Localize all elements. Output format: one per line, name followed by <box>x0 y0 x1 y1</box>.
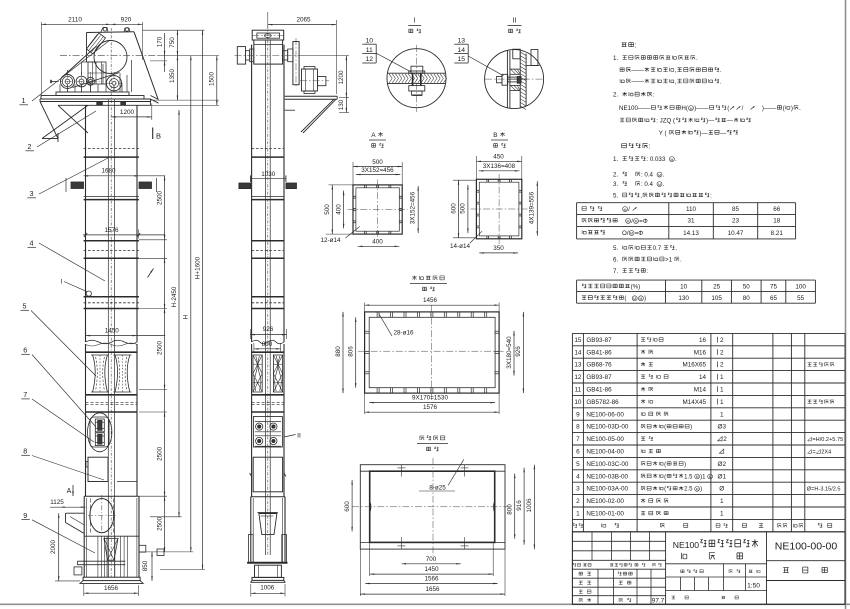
svg-text:II: II <box>297 433 301 440</box>
svg-text:.: . <box>696 55 698 62</box>
svg-text:1200: 1200 <box>338 70 345 85</box>
svg-text:13: 13 <box>574 362 582 369</box>
svg-text:0.7: 0.7 <box>653 245 662 252</box>
svg-text:170: 170 <box>156 36 163 47</box>
svg-text:850: 850 <box>142 560 149 571</box>
svg-text::: : <box>646 268 648 275</box>
svg-text::: : <box>710 193 712 200</box>
svg-text:14.13: 14.13 <box>683 230 699 237</box>
svg-text:8: 8 <box>23 447 27 456</box>
svg-text:=: = <box>812 450 815 456</box>
svg-text:2.: 2. <box>613 92 618 99</box>
svg-text:)—: )— <box>699 130 708 137</box>
svg-text:7: 7 <box>576 436 580 443</box>
svg-text:.: . <box>720 67 722 74</box>
svg-text:1200: 1200 <box>120 109 135 116</box>
svg-text:1680: 1680 <box>101 167 116 174</box>
svg-text:(: ( <box>664 474 666 480</box>
svg-text:2X4: 2X4 <box>821 450 831 456</box>
svg-text:8: 8 <box>576 424 580 431</box>
svg-text:,: , <box>675 67 677 74</box>
svg-text:): ) <box>684 462 686 468</box>
svg-text:.: . <box>680 257 682 264</box>
svg-text:350: 350 <box>493 245 504 252</box>
svg-text:16: 16 <box>699 337 707 344</box>
svg-text:: 0.4: : 0.4 <box>641 172 654 179</box>
svg-text:NE100-01-00: NE100-01-00 <box>586 511 624 518</box>
svg-text:B: B <box>493 132 497 139</box>
svg-text:.: . <box>720 79 722 86</box>
svg-text:NE100-03B-00: NE100-03B-00 <box>586 473 628 480</box>
svg-text:450: 450 <box>493 154 504 161</box>
svg-text:——: —— <box>631 79 644 86</box>
svg-text:66: 66 <box>773 206 781 213</box>
svg-text:M: M <box>624 208 627 212</box>
svg-text:3X180=540: 3X180=540 <box>506 336 513 369</box>
svg-text:M: M <box>670 158 673 162</box>
svg-text:—: — <box>727 118 734 125</box>
svg-text:M16X65: M16X65 <box>683 362 707 369</box>
svg-text:5.: 5. <box>613 245 618 252</box>
svg-text:1350: 1350 <box>169 69 176 84</box>
svg-text:65: 65 <box>770 295 778 302</box>
svg-text:NE100-05-00: NE100-05-00 <box>586 436 624 443</box>
svg-text:1656: 1656 <box>104 585 119 592</box>
svg-text:M: M <box>696 488 699 492</box>
svg-text:1:50: 1:50 <box>747 582 760 589</box>
svg-text:): ) <box>690 425 692 431</box>
svg-text:1.5: 1.5 <box>684 474 693 480</box>
svg-text:2: 2 <box>28 142 32 151</box>
svg-text:800: 800 <box>507 504 514 515</box>
svg-text:Ø: Ø <box>719 486 724 493</box>
svg-text:6: 6 <box>576 449 580 456</box>
svg-text:130: 130 <box>338 99 345 110</box>
svg-text:: JZQ (: : JZQ ( <box>656 118 676 125</box>
svg-text:: 0.4: : 0.4 <box>641 181 654 188</box>
svg-text:5: 5 <box>576 461 580 468</box>
svg-text:10.47: 10.47 <box>728 230 744 237</box>
svg-text:10: 10 <box>366 37 374 44</box>
svg-text:6.: 6. <box>613 257 618 264</box>
svg-text:.: . <box>663 172 665 179</box>
svg-text:)——: )—— <box>762 105 777 112</box>
svg-text:NE100-00-00: NE100-00-00 <box>775 541 838 553</box>
svg-text:): ) <box>700 487 702 493</box>
svg-text:3X152=456: 3X152=456 <box>361 167 394 174</box>
svg-text::: : <box>653 92 655 99</box>
svg-text:(%): (%) <box>631 284 641 291</box>
svg-text:/: / <box>631 218 633 225</box>
svg-text:,: , <box>675 79 677 86</box>
svg-text:=Φ: =Φ <box>639 218 648 225</box>
svg-text:2: 2 <box>720 349 724 356</box>
svg-text:1450: 1450 <box>105 327 120 334</box>
svg-text:23: 23 <box>732 218 740 225</box>
svg-text::: : <box>635 43 637 50</box>
svg-text:75: 75 <box>770 284 778 291</box>
svg-text:3X136=408: 3X136=408 <box>483 163 516 170</box>
svg-text:GB5782-86: GB5782-86 <box>586 399 619 406</box>
svg-text:110: 110 <box>686 206 697 213</box>
svg-text:85: 85 <box>732 206 740 213</box>
svg-text:,: , <box>640 193 642 200</box>
svg-text:I: I <box>414 18 416 25</box>
svg-text:(: ( <box>664 487 666 493</box>
svg-text:2: 2 <box>720 362 724 369</box>
svg-text:1576: 1576 <box>104 227 119 234</box>
svg-text:6: 6 <box>23 346 27 355</box>
svg-text:)1: )1 <box>700 474 706 480</box>
svg-text:H: H <box>183 314 190 319</box>
svg-text:=Φ: =Φ <box>635 230 644 237</box>
svg-text:M: M <box>630 232 633 236</box>
svg-text:2: 2 <box>576 498 580 505</box>
svg-text:1500: 1500 <box>209 72 216 87</box>
svg-text:800: 800 <box>262 341 273 348</box>
svg-text:8-ø25: 8-ø25 <box>429 485 446 492</box>
svg-text:700: 700 <box>426 556 437 563</box>
svg-text:12: 12 <box>574 374 582 381</box>
svg-text:1566: 1566 <box>424 575 439 582</box>
svg-text:M: M <box>696 475 699 479</box>
svg-text:2065: 2065 <box>296 16 311 23</box>
svg-text:1: 1 <box>22 96 26 105</box>
svg-text:2: 2 <box>720 337 724 344</box>
svg-text:Ø2: Ø2 <box>718 461 727 468</box>
svg-text:130: 130 <box>678 295 689 302</box>
svg-text:5: 5 <box>23 302 27 311</box>
svg-text:.: . <box>663 181 665 188</box>
svg-text:80: 80 <box>743 295 751 302</box>
svg-text:)——: )—— <box>694 105 709 112</box>
svg-text:/: / <box>742 105 744 112</box>
svg-text:M: M <box>690 107 693 111</box>
svg-text:1: 1 <box>576 511 580 518</box>
svg-text:>1: >1 <box>665 257 673 264</box>
svg-text:NE100-03D-00: NE100-03D-00 <box>586 424 629 431</box>
svg-text:10: 10 <box>680 284 688 291</box>
svg-text:NE100-03A-00: NE100-03A-00 <box>586 486 628 493</box>
svg-text:1125: 1125 <box>50 499 64 506</box>
svg-text:NE100-03C-00: NE100-03C-00 <box>586 461 629 468</box>
svg-text:NE100-04-00: NE100-04-00 <box>586 449 624 456</box>
svg-text:14: 14 <box>699 374 707 381</box>
svg-text:M16: M16 <box>694 349 707 356</box>
svg-text:25: 25 <box>713 284 721 291</box>
svg-text:2500: 2500 <box>157 446 164 461</box>
svg-text:B: B <box>156 131 161 140</box>
svg-text:400: 400 <box>372 238 383 245</box>
svg-text:M: M <box>658 183 661 187</box>
svg-text:A: A <box>67 488 72 495</box>
svg-text:GB41-86: GB41-86 <box>586 349 612 356</box>
svg-text:.: . <box>675 245 677 252</box>
svg-text:——: —— <box>631 67 644 74</box>
svg-text:GB93-87: GB93-87 <box>586 337 612 344</box>
svg-text:3.: 3. <box>613 181 618 188</box>
svg-text:97.7: 97.7 <box>652 597 665 604</box>
svg-text:806: 806 <box>348 346 355 357</box>
svg-text:2500: 2500 <box>157 341 164 356</box>
svg-text:GB93-87: GB93-87 <box>586 374 612 381</box>
svg-text:: 0.033: : 0.033 <box>646 156 665 163</box>
svg-text:400: 400 <box>335 204 342 215</box>
svg-text:2110: 2110 <box>68 16 82 23</box>
svg-text:M14: M14 <box>694 387 707 394</box>
svg-text:2.5: 2.5 <box>684 487 693 493</box>
svg-text:31: 31 <box>687 218 695 225</box>
svg-text:1006: 1006 <box>260 585 275 592</box>
svg-text:9: 9 <box>576 411 580 418</box>
svg-text:50: 50 <box>743 284 751 291</box>
svg-text:11: 11 <box>366 47 373 54</box>
svg-text:4: 4 <box>30 239 34 248</box>
svg-text:600: 600 <box>450 203 457 214</box>
svg-text:Y (: Y ( <box>659 130 668 137</box>
svg-text:1450: 1450 <box>424 566 439 573</box>
svg-text:NE100——: NE100—— <box>619 105 651 112</box>
svg-text:1030: 1030 <box>261 171 276 178</box>
svg-text:A: A <box>371 132 376 139</box>
svg-text:12: 12 <box>366 56 374 63</box>
svg-text:I: I <box>61 279 63 286</box>
svg-text:/: / <box>628 206 630 213</box>
svg-text:1656: 1656 <box>425 586 440 593</box>
svg-text:1: 1 <box>720 411 724 418</box>
svg-text:(: ( <box>664 425 666 431</box>
svg-text:1: 1 <box>720 374 724 381</box>
svg-text:100: 100 <box>795 284 806 291</box>
svg-text:10: 10 <box>574 399 582 406</box>
svg-text:II: II <box>513 18 517 25</box>
svg-text:500: 500 <box>460 203 467 214</box>
svg-text:1: 1 <box>720 498 724 505</box>
svg-text:1576: 1576 <box>423 404 438 411</box>
svg-text:9: 9 <box>23 511 27 520</box>
svg-text:18: 18 <box>773 218 781 225</box>
svg-text:3X152=456: 3X152=456 <box>410 191 417 224</box>
svg-text:3: 3 <box>30 189 34 198</box>
svg-text:GB41-86: GB41-86 <box>586 387 612 394</box>
svg-text:): ) <box>644 295 646 302</box>
svg-text:13: 13 <box>458 37 466 44</box>
svg-text:M14X45: M14X45 <box>683 399 707 406</box>
svg-text:M: M <box>635 220 638 224</box>
svg-text:14: 14 <box>458 47 466 54</box>
svg-text:7: 7 <box>23 390 27 399</box>
svg-text:7.: 7. <box>613 268 618 275</box>
svg-text:4X139=556: 4X139=556 <box>529 191 536 224</box>
svg-text:)—: )— <box>706 118 715 125</box>
svg-text:H(: H( <box>681 105 688 112</box>
svg-text:600: 600 <box>344 501 351 512</box>
svg-text:105: 105 <box>711 295 722 302</box>
svg-text:15: 15 <box>574 337 582 344</box>
svg-text:M: M <box>627 220 630 224</box>
svg-text:1: 1 <box>720 399 724 406</box>
svg-text:916: 916 <box>516 500 523 511</box>
svg-text:M: M <box>633 297 636 301</box>
svg-text:926: 926 <box>263 326 274 333</box>
svg-text:1006: 1006 <box>526 498 533 513</box>
svg-text:—: — <box>720 130 727 137</box>
svg-text:920: 920 <box>121 16 132 23</box>
svg-text:2500: 2500 <box>157 516 164 531</box>
svg-text:M: M <box>639 297 642 301</box>
svg-text:): ) <box>791 105 793 112</box>
svg-text:M: M <box>658 173 661 177</box>
svg-text:Ø3: Ø3 <box>718 424 727 431</box>
svg-text:2: 2 <box>723 436 727 443</box>
svg-text:GB68-76: GB68-76 <box>586 362 612 369</box>
svg-text:(: ( <box>664 462 666 468</box>
svg-text:Ø=H-3.15/2.5: Ø=H-3.15/2.5 <box>807 487 841 493</box>
svg-text:880: 880 <box>335 346 342 357</box>
svg-text:14-ø14: 14-ø14 <box>450 243 470 250</box>
svg-text:5.: 5. <box>613 193 618 200</box>
svg-text:Ο/: Ο/ <box>622 230 629 237</box>
svg-text::: : <box>649 144 651 151</box>
svg-text:1: 1 <box>720 511 724 518</box>
svg-text:1.: 1. <box>613 55 618 62</box>
svg-text:H-2450: H-2450 <box>171 286 178 307</box>
svg-text:750: 750 <box>169 37 176 48</box>
svg-text:Ø1: Ø1 <box>718 473 727 480</box>
svg-text:M: M <box>709 475 712 479</box>
svg-text:11: 11 <box>575 387 582 394</box>
svg-text:2.: 2. <box>613 172 618 179</box>
svg-text:500: 500 <box>324 204 331 215</box>
svg-text:NE100-06-00: NE100-06-00 <box>586 411 624 418</box>
svg-text:3: 3 <box>576 486 580 493</box>
svg-text:14: 14 <box>574 349 582 356</box>
svg-text:1456: 1456 <box>423 297 438 304</box>
svg-text:500: 500 <box>372 159 383 166</box>
svg-text:=H/0.2+5.75: =H/0.2+5.75 <box>812 437 843 443</box>
svg-text:15: 15 <box>458 56 466 63</box>
svg-text:28-ø16: 28-ø16 <box>394 330 414 337</box>
svg-text:NE100-02-00: NE100-02-00 <box>586 498 624 505</box>
svg-text:1.: 1. <box>613 156 618 163</box>
svg-text:1: 1 <box>720 387 724 394</box>
svg-text:NE100: NE100 <box>673 540 699 550</box>
svg-text:55: 55 <box>797 295 805 302</box>
svg-text:.: . <box>799 105 801 112</box>
svg-text:2500: 2500 <box>157 191 164 206</box>
svg-text:926: 926 <box>515 346 522 357</box>
svg-text:8.21: 8.21 <box>771 230 784 237</box>
svg-text:2000: 2000 <box>50 540 57 555</box>
svg-text:4: 4 <box>576 473 580 480</box>
svg-text:.: . <box>675 156 677 163</box>
svg-text:H+1600: H+1600 <box>194 256 201 279</box>
svg-text:12-ø14: 12-ø14 <box>321 237 341 244</box>
svg-text:9X170=1530: 9X170=1530 <box>412 395 448 402</box>
